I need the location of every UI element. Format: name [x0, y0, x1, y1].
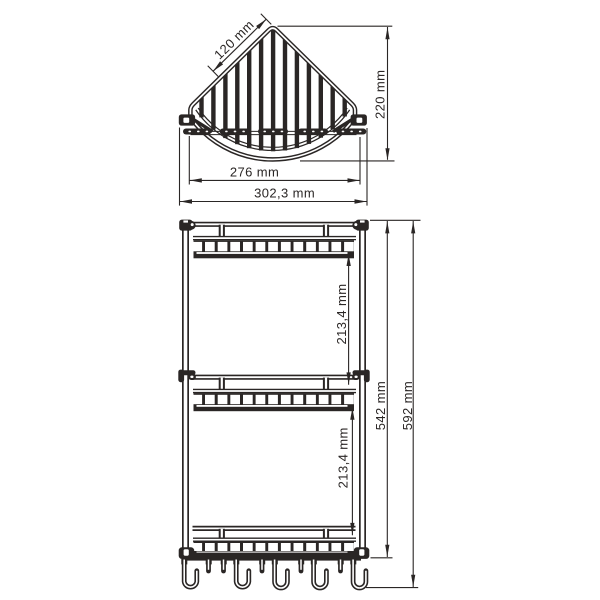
- svg-text:213,4 mm: 213,4 mm: [334, 283, 349, 344]
- svg-text:220 mm: 220 mm: [373, 70, 388, 119]
- svg-text:592 mm: 592 mm: [400, 381, 415, 430]
- svg-text:276 mm: 276 mm: [230, 164, 279, 179]
- svg-text:302,3 mm: 302,3 mm: [254, 185, 315, 200]
- svg-text:542 mm: 542 mm: [373, 381, 388, 430]
- svg-text:213,4 mm: 213,4 mm: [336, 427, 351, 488]
